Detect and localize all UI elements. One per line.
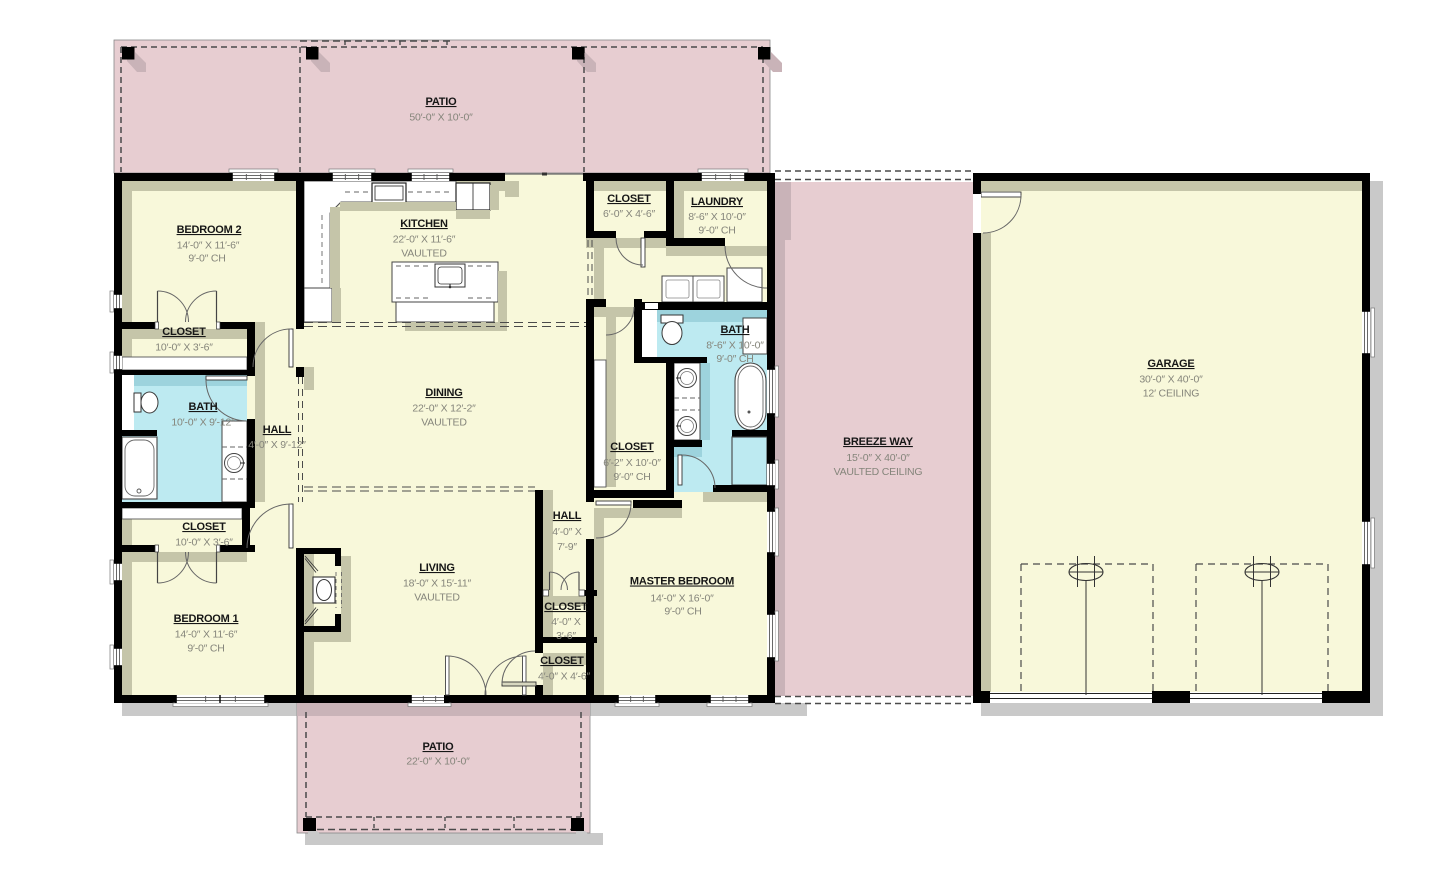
- svg-text:14′-0″ X 16′-0″: 14′-0″ X 16′-0″: [650, 593, 714, 605]
- svg-text:4′-0″ X: 4′-0″ X: [552, 526, 582, 538]
- svg-text:HALL: HALL: [553, 510, 582, 522]
- svg-text:CLOSET: CLOSET: [544, 601, 588, 613]
- svg-text:BEDROOM 1: BEDROOM 1: [174, 613, 239, 625]
- svg-text:6′-2″ X 10′-0″: 6′-2″ X 10′-0″: [603, 457, 661, 469]
- svg-text:15′-0″ X 40′-0″: 15′-0″ X 40′-0″: [846, 452, 910, 464]
- svg-text:DINING: DINING: [425, 387, 462, 399]
- svg-text:4′-0″ X 4′-6″: 4′-0″ X 4′-6″: [538, 671, 590, 683]
- svg-text:LAUNDRY: LAUNDRY: [691, 196, 744, 208]
- svg-text:50′-0″ X 10′-0″: 50′-0″ X 10′-0″: [409, 112, 473, 124]
- svg-text:9′-0″ CH: 9′-0″ CH: [188, 253, 225, 265]
- svg-text:3′-6″: 3′-6″: [556, 630, 576, 642]
- svg-text:7′-9″: 7′-9″: [557, 541, 577, 553]
- svg-text:18′-0″ X 15′-11″: 18′-0″ X 15′-11″: [403, 578, 472, 590]
- svg-text:LIVING: LIVING: [419, 562, 454, 574]
- svg-text:10′-0″ X 9′-12″: 10′-0″ X 9′-12″: [171, 417, 235, 429]
- svg-text:9′-0″ CH: 9′-0″ CH: [613, 471, 650, 483]
- svg-text:30′-0″ X 40′-0″: 30′-0″ X 40′-0″: [1139, 374, 1203, 386]
- svg-text:CLOSET: CLOSET: [162, 326, 206, 338]
- svg-text:BATH: BATH: [189, 401, 218, 413]
- svg-text:MASTER BEDROOM: MASTER BEDROOM: [630, 576, 734, 588]
- svg-text:14′-0″ X 11′-6″: 14′-0″ X 11′-6″: [175, 629, 238, 641]
- svg-text:8′-6″ X 10′-0″: 8′-6″ X 10′-0″: [688, 211, 746, 223]
- svg-text:4′-0″ X 9′-12″: 4′-0″ X 9′-12″: [248, 439, 306, 451]
- svg-text:BATH: BATH: [721, 324, 750, 336]
- svg-text:14′-0″ X 11′-6″: 14′-0″ X 11′-6″: [177, 240, 240, 252]
- svg-text:22′-0″ X 11′-6″: 22′-0″ X 11′-6″: [393, 234, 456, 246]
- svg-text:10′-0″ X 3′-6″: 10′-0″ X 3′-6″: [155, 342, 213, 354]
- svg-text:VAULTED CEILING: VAULTED CEILING: [834, 466, 923, 478]
- svg-text:9′-0″ CH: 9′-0″ CH: [716, 353, 753, 365]
- svg-text:VAULTED: VAULTED: [421, 417, 467, 429]
- svg-text:CLOSET: CLOSET: [607, 193, 651, 205]
- svg-text:22′-0″ X 12′-2″: 22′-0″ X 12′-2″: [412, 403, 476, 415]
- svg-text:CLOSET: CLOSET: [610, 441, 654, 453]
- svg-text:10′-0″ X 3′-6″: 10′-0″ X 3′-6″: [175, 537, 233, 549]
- svg-text:BEDROOM 2: BEDROOM 2: [177, 224, 242, 236]
- svg-text:6′-0″ X 4′-6″: 6′-0″ X 4′-6″: [603, 208, 655, 220]
- svg-text:4′-0″ X: 4′-0″ X: [551, 616, 581, 628]
- svg-text:GARAGE: GARAGE: [1147, 358, 1194, 370]
- svg-text:BREEZE WAY: BREEZE WAY: [843, 436, 914, 448]
- svg-text:22′-0″ X 10′-0″: 22′-0″ X 10′-0″: [406, 756, 470, 768]
- svg-text:VAULTED: VAULTED: [414, 592, 460, 604]
- svg-text:12′ CEILING: 12′ CEILING: [1143, 388, 1199, 400]
- svg-text:CLOSET: CLOSET: [182, 521, 226, 533]
- svg-text:8′-6″ X 10′-0″: 8′-6″ X 10′-0″: [706, 340, 764, 352]
- svg-text:HALL: HALL: [263, 424, 292, 436]
- svg-text:KITCHEN: KITCHEN: [400, 218, 448, 230]
- svg-text:PATIO: PATIO: [426, 96, 458, 108]
- svg-text:PATIO: PATIO: [423, 741, 455, 753]
- svg-text:VAULTED: VAULTED: [401, 248, 447, 260]
- svg-text:9′-0″ CH: 9′-0″ CH: [698, 225, 735, 237]
- svg-text:9′-0″ CH: 9′-0″ CH: [664, 606, 701, 618]
- svg-text:9′-0″ CH: 9′-0″ CH: [187, 643, 224, 655]
- svg-text:CLOSET: CLOSET: [540, 655, 584, 667]
